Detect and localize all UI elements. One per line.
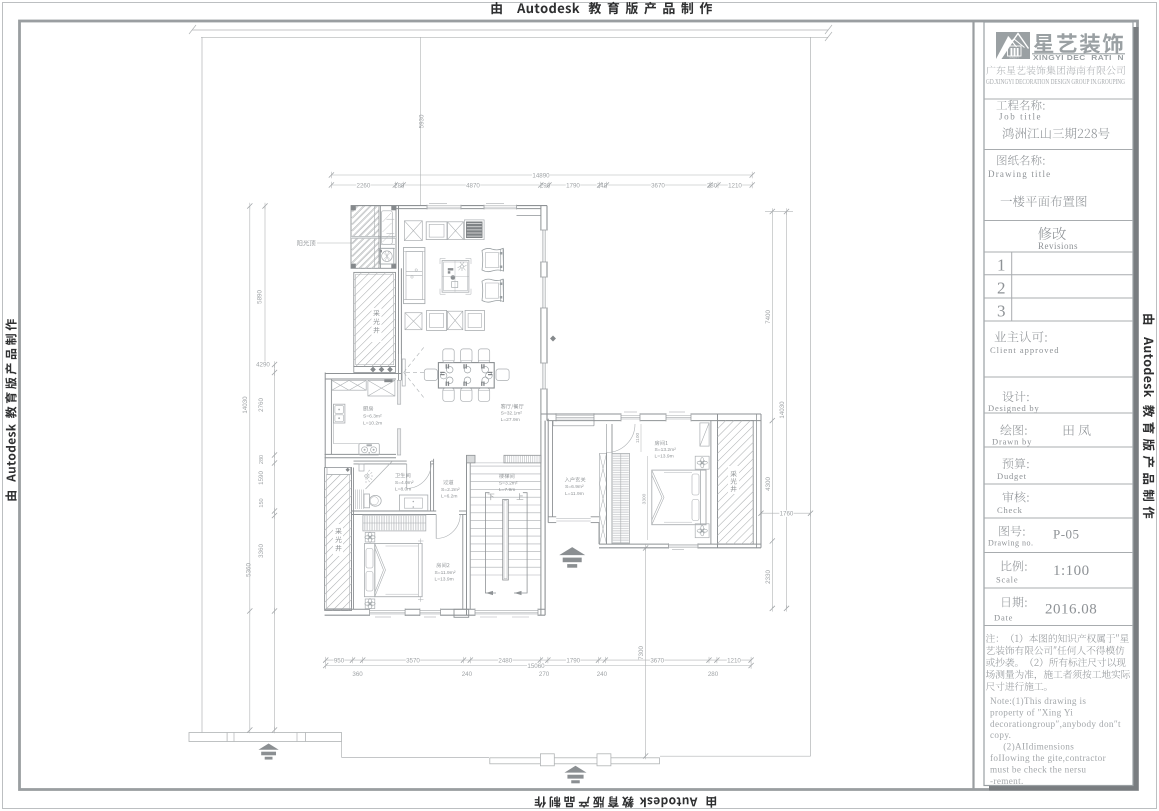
svg-text:4870: 4870 <box>466 182 480 189</box>
svg-text:L=11.9m: L=11.9m <box>565 491 584 497</box>
svg-text:L=10.2m: L=10.2m <box>363 421 382 427</box>
svg-text:S=13.2m²: S=13.2m² <box>655 447 677 453</box>
svg-text:2480: 2480 <box>498 657 512 664</box>
svg-text:5890: 5890 <box>257 290 264 304</box>
svg-text:950: 950 <box>334 657 345 664</box>
svg-text:280: 280 <box>708 671 719 678</box>
svg-text:L=8.0m: L=8.0m <box>395 487 411 493</box>
svg-text:3670: 3670 <box>651 182 665 189</box>
svg-text:270: 270 <box>539 671 550 678</box>
svg-text:7400: 7400 <box>765 310 772 324</box>
svg-text:Drawing title: Drawing title <box>988 169 1051 179</box>
svg-text:L=13.9m: L=13.9m <box>435 576 454 582</box>
svg-text:must be check the nersu: must be check the nersu <box>990 764 1086 774</box>
svg-text:7300: 7300 <box>638 646 645 660</box>
svg-text:5360: 5360 <box>246 563 253 577</box>
svg-text:5930: 5930 <box>419 114 426 128</box>
svg-text:decorationgroup″,anybody don″t: decorationgroup″,anybody don″t <box>990 719 1121 729</box>
svg-text:Check: Check <box>997 505 1023 515</box>
svg-text:14890: 14890 <box>532 173 550 180</box>
svg-text:240: 240 <box>462 671 473 678</box>
svg-text:2: 2 <box>997 279 1006 298</box>
svg-text:Drawing no.: Drawing no. <box>988 539 1034 548</box>
svg-text:Note:(1)This drawing is: Note:(1)This drawing is <box>990 696 1086 706</box>
svg-text:Job title: Job title <box>999 112 1042 122</box>
svg-text:L=6.2m: L=6.2m <box>441 493 457 499</box>
svg-text:3360: 3360 <box>258 544 265 558</box>
svg-text:Date: Date <box>994 613 1013 623</box>
svg-text:Revisions: Revisions <box>1038 241 1078 251</box>
svg-text:Client approved: Client approved <box>990 345 1060 355</box>
svg-text:15060: 15060 <box>527 663 545 670</box>
svg-text:L=13.9m: L=13.9m <box>655 454 674 460</box>
svg-text:XINGYI: XINGYI <box>1009 57 1018 60</box>
svg-text:2260: 2260 <box>357 182 371 189</box>
svg-text:150: 150 <box>259 498 265 507</box>
svg-text:1210: 1210 <box>727 657 741 664</box>
svg-text:3: 3 <box>997 302 1006 321</box>
svg-text:14030: 14030 <box>242 396 249 414</box>
svg-text:S=32.1m²: S=32.1m² <box>501 411 523 417</box>
svg-text:360: 360 <box>352 671 363 678</box>
svg-text:3570: 3570 <box>406 657 420 664</box>
svg-text:240: 240 <box>597 671 608 678</box>
svg-text:2016.08: 2016.08 <box>1045 602 1097 618</box>
svg-text:-rement.: -rement. <box>990 776 1024 786</box>
svg-text:S=11.9m²: S=11.9m² <box>435 570 456 576</box>
svg-text:L=27.9m: L=27.9m <box>501 417 520 423</box>
svg-text:1590: 1590 <box>258 471 265 485</box>
svg-text:3670: 3670 <box>650 657 664 664</box>
svg-text:4300: 4300 <box>765 477 772 491</box>
svg-text:XINGYI DEC RATI N: XINGYI DEC RATI N <box>1033 53 1124 62</box>
svg-text:P-05: P-05 <box>1053 527 1080 542</box>
svg-text:S=3.2m²: S=3.2m² <box>499 481 518 487</box>
svg-text:S=4.0m²: S=4.0m² <box>395 480 414 486</box>
svg-text:Scale: Scale <box>996 575 1018 585</box>
svg-text:2760: 2760 <box>258 398 265 412</box>
svg-text:1210: 1210 <box>728 182 742 189</box>
svg-text:GD.XINGYI DECORATION DESIGN GR: GD.XINGYI DECORATION DESIGN GROUP IN.GRO… <box>986 79 1125 86</box>
svg-text:1:100: 1:100 <box>1053 563 1090 579</box>
svg-text:280: 280 <box>259 455 265 464</box>
svg-text:1: 1 <box>997 256 1006 275</box>
svg-text:S=6.3m²: S=6.3m² <box>363 414 382 420</box>
svg-text:1790: 1790 <box>566 182 580 189</box>
svg-text:S=6.9m²: S=6.9m² <box>565 484 584 490</box>
svg-text:4290: 4290 <box>256 362 270 369</box>
svg-text:14030: 14030 <box>779 401 786 419</box>
svg-text:1760: 1760 <box>780 511 794 518</box>
svg-text:(2)AIIdimensions: (2)AIIdimensions <box>990 742 1074 752</box>
svg-text:1100: 1100 <box>635 433 641 444</box>
svg-text:Drawn by: Drawn by <box>992 437 1032 447</box>
svg-text:property of ″Xing Yi: property of ″Xing Yi <box>990 707 1073 717</box>
svg-text:copy.: copy. <box>990 730 1011 740</box>
svg-text:foIIowing the gite,contractor: foIIowing the gite,contractor <box>990 753 1106 763</box>
svg-text:Designed by: Designed by <box>988 403 1040 413</box>
svg-text:1790: 1790 <box>566 657 580 664</box>
svg-text:L=7.9m: L=7.9m <box>499 487 515 493</box>
svg-text:Dudget: Dudget <box>997 471 1027 481</box>
svg-text:S=2.2m²: S=2.2m² <box>441 487 460 493</box>
svg-text:3300: 3300 <box>641 493 647 504</box>
svg-text:2330: 2330 <box>765 570 772 584</box>
